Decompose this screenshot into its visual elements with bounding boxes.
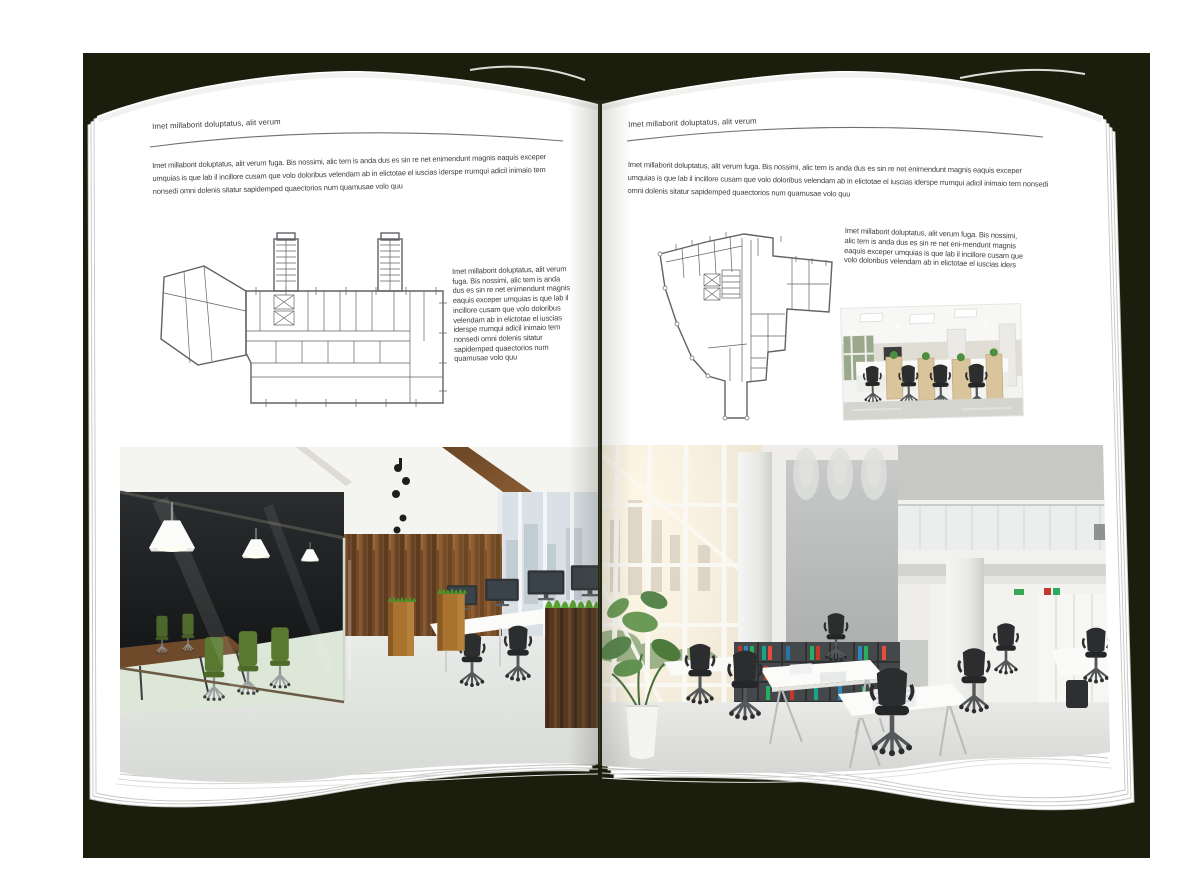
right-intro-paragraph: Imet millaborit doluptatus, alit verum f… [627, 158, 1050, 204]
book-spread-graphic [0, 0, 1200, 891]
magazine-mockup: { "colors": { "backdrop": "#1c1e0d", "pa… [0, 0, 1200, 891]
right-photo [589, 445, 1122, 782]
small-photo [813, 304, 1023, 421]
left-photo [120, 447, 609, 790]
left-plan-side-text: Imet millaborit doluptatus, alit verum f… [452, 264, 574, 364]
spine-shadow [568, 100, 632, 766]
right-plan-side-text: Imet millaborit doluptatus, alit verum f… [844, 226, 1027, 271]
